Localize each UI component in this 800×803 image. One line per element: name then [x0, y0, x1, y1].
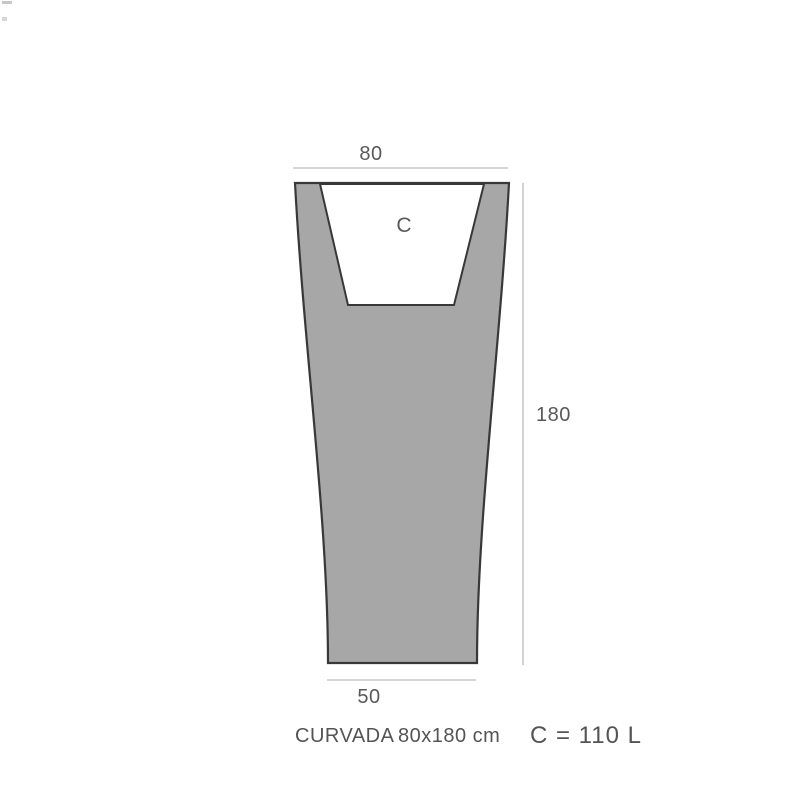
- product-name: CURVADA: [295, 725, 395, 747]
- bottom-width-label: 50: [357, 686, 380, 708]
- top-width-label: 80: [359, 143, 382, 165]
- diagram-svg: 80 C 180 50 CURVADA 80x180 cm C = 110 L: [0, 0, 800, 803]
- planter-dimension-diagram: 80 C 180 50 CURVADA 80x180 cm C = 110 L: [0, 0, 800, 803]
- height-label: 180: [536, 404, 571, 426]
- cavity-capacity-letter: C: [396, 214, 411, 237]
- product-capacity: C = 110 L: [530, 722, 642, 749]
- planter-cavity: [320, 184, 484, 305]
- product-size: 80x180 cm: [398, 725, 500, 747]
- corner-artifact: [2, 1, 12, 21]
